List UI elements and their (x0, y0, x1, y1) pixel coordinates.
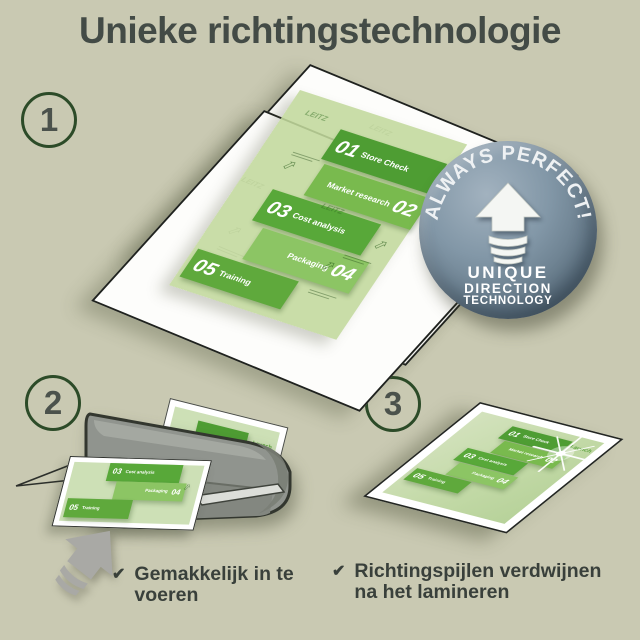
plan-step-4-panel: Packaging 04 (112, 482, 187, 502)
finished-doc-content: 01 Store Check Market research 02 03 Cos… (382, 412, 604, 524)
plan-step-5-panel: 05 Training (63, 498, 133, 519)
plan-step-label: Packaging (470, 472, 495, 480)
brand-watermark: LEITZ (303, 109, 329, 123)
plan-step-label: Training (426, 477, 447, 484)
step-3-number: 3 (384, 385, 402, 423)
benefit-item-arrows-disappear: ✔ Richtingspijlen verdwijnen na het lami… (332, 561, 606, 603)
step-1-number: 1 (40, 101, 58, 139)
plan-step-label: Training (217, 269, 253, 286)
page-title: Unieke richtingstechnologie (0, 10, 640, 52)
benefit-text: Gemakkelijk in te voeren (134, 564, 304, 606)
plan-step-number: 05 (68, 504, 79, 512)
direction-arrow-watermark-icon: ⇧ (277, 157, 300, 175)
badge-line-technology: TECHNOLOGY (419, 295, 597, 307)
badge-line-unique: UNIQUE (419, 263, 597, 283)
step-1-circle: 1 (21, 92, 77, 148)
plan-step-label: Market research (326, 181, 393, 208)
always-perfect-badge: ALWAYS PERFECT! UNIQUE DIRECTION TECHNOL… (419, 141, 597, 319)
benefit-item-easy-feed: ✔ Gemakkelijk in te voeren (112, 564, 304, 606)
infographic-canvas: Unieke richtingstechnologie 1 ⇧ ⇧ LEITZ … (0, 0, 640, 640)
plan-step-label: Packaging (144, 489, 168, 494)
badge-line-direction: DIRECTION (419, 281, 597, 296)
plan-step-number: 04 (494, 477, 511, 485)
up-arrow-chevrons-icon (476, 183, 540, 264)
plan-step-number: 02 (388, 197, 420, 220)
plan-step-label: Store Check (359, 151, 411, 173)
plan-step-number: 03 (112, 468, 123, 476)
feed-direction-arrow-icon (34, 520, 134, 608)
direction-arrow-watermark-icon: ⇧ (369, 236, 392, 254)
fine-print-lines (308, 289, 337, 301)
plan-step-label: Training (81, 506, 100, 511)
plan-step-label: Cost analysis (125, 470, 155, 475)
check-icon: ✔ (332, 561, 345, 603)
plan-step-3-panel: 03 Cost analysis (106, 463, 183, 483)
benefit-text: Richtingspijlen verdwijnen na het lamine… (354, 561, 606, 603)
exit-doc-content: 03 Cost analysis Packaging 04 05 Trainin… (59, 462, 205, 525)
